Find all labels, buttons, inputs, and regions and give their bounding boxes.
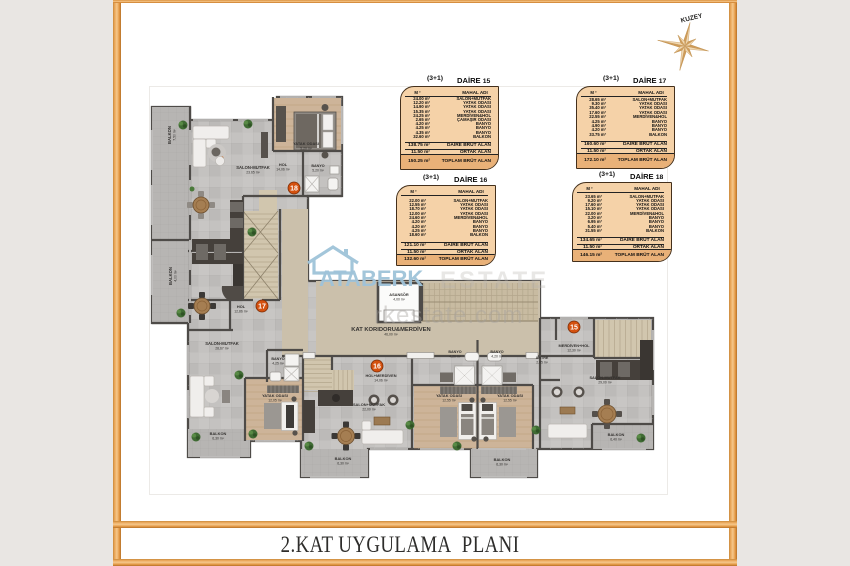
svg-text:16: 16 — [373, 364, 381, 371]
svg-text:BANYO5,20 m²: BANYO5,20 m² — [311, 164, 324, 172]
svg-text:ANTRE2,05 m²: ANTRE2,05 m² — [536, 356, 549, 364]
svg-text:18: 18 — [290, 186, 298, 193]
svg-text:KUZEY: KUZEY — [680, 12, 704, 24]
svg-text:17: 17 — [258, 304, 266, 311]
svg-text:BANYO4,25 m²: BANYO4,25 m² — [271, 357, 284, 365]
svg-text:BANYO4,20 m²: BANYO4,20 m² — [448, 350, 461, 358]
svg-text:BANYO4,20 m²: BANYO4,20 m² — [490, 350, 503, 358]
